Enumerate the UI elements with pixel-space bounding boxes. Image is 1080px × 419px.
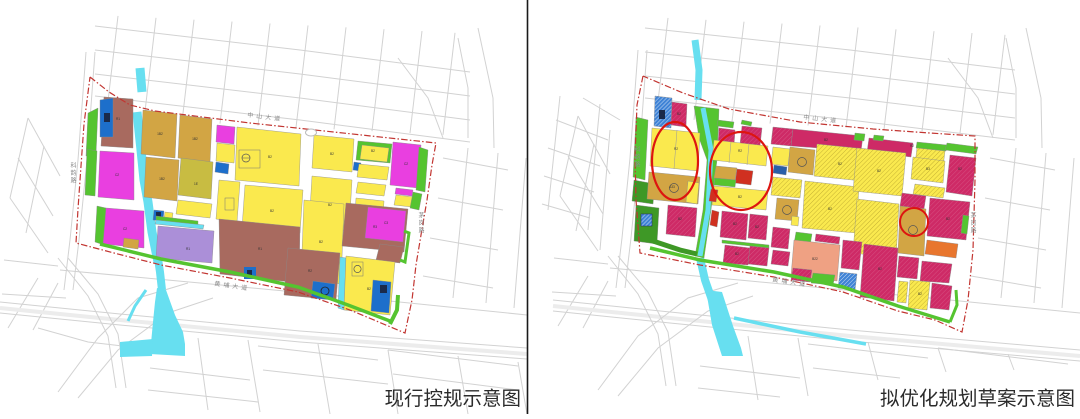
svg-text:C2: C2 xyxy=(115,173,119,177)
svg-text:1B2: 1B2 xyxy=(159,177,165,181)
svg-text:1B2: 1B2 xyxy=(157,132,163,136)
svg-text:B2: B2 xyxy=(918,292,922,296)
svg-text:B2: B2 xyxy=(330,152,334,156)
svg-text:R1: R1 xyxy=(258,247,262,251)
svg-text:B2: B2 xyxy=(755,225,759,229)
svg-text:拟优化规划草案示意图: 拟优化规划草案示意图 xyxy=(880,388,1075,410)
svg-text:B2: B2 xyxy=(735,252,739,256)
svg-text:B2: B2 xyxy=(270,209,274,213)
svg-text:R3: R3 xyxy=(373,225,377,229)
svg-text:B2: B2 xyxy=(733,222,737,226)
svg-text:B2: B2 xyxy=(738,195,742,199)
svg-text:B2: B2 xyxy=(328,203,332,207)
svg-text:B2: B2 xyxy=(367,287,371,291)
svg-text:R2: R2 xyxy=(738,149,742,153)
svg-text:B2: B2 xyxy=(268,155,272,159)
svg-text:R2: R2 xyxy=(674,147,678,151)
svg-text:B2: B2 xyxy=(828,207,832,211)
svg-text:B2: B2 xyxy=(678,217,682,221)
svg-text:R1: R1 xyxy=(116,117,120,121)
svg-text:A33: A33 xyxy=(669,185,675,189)
svg-text:B2: B2 xyxy=(677,112,681,116)
svg-text:B2: B2 xyxy=(946,217,950,221)
svg-text:B2: B2 xyxy=(878,267,882,271)
svg-text:B3: B3 xyxy=(926,167,930,171)
svg-text:B2: B2 xyxy=(371,149,375,153)
svg-text:C3: C3 xyxy=(384,221,388,225)
svg-text:1E: 1E xyxy=(194,182,198,186)
svg-text:R2: R2 xyxy=(308,269,312,273)
svg-text:B2: B2 xyxy=(838,162,842,166)
svg-text:B2: B2 xyxy=(319,240,323,244)
svg-text:科韵路: 科韵路 xyxy=(633,145,640,168)
svg-text:科韵路: 科韵路 xyxy=(69,161,76,184)
svg-text:现行控规示意图: 现行控规示意图 xyxy=(384,388,521,410)
svg-text:C2: C2 xyxy=(404,162,408,166)
svg-text:B2: B2 xyxy=(958,167,962,171)
svg-text:R2: R2 xyxy=(910,144,914,148)
svg-text:茅岗路: 茅岗路 xyxy=(417,211,424,234)
svg-text:1B2: 1B2 xyxy=(192,137,198,141)
svg-text:B22: B22 xyxy=(812,257,818,261)
svg-text:茅岗路: 茅岗路 xyxy=(969,211,976,234)
svg-text:R1: R1 xyxy=(186,247,190,251)
svg-text:B2: B2 xyxy=(824,138,828,142)
svg-text:B2: B2 xyxy=(877,169,881,173)
svg-text:C2: C2 xyxy=(123,227,127,231)
